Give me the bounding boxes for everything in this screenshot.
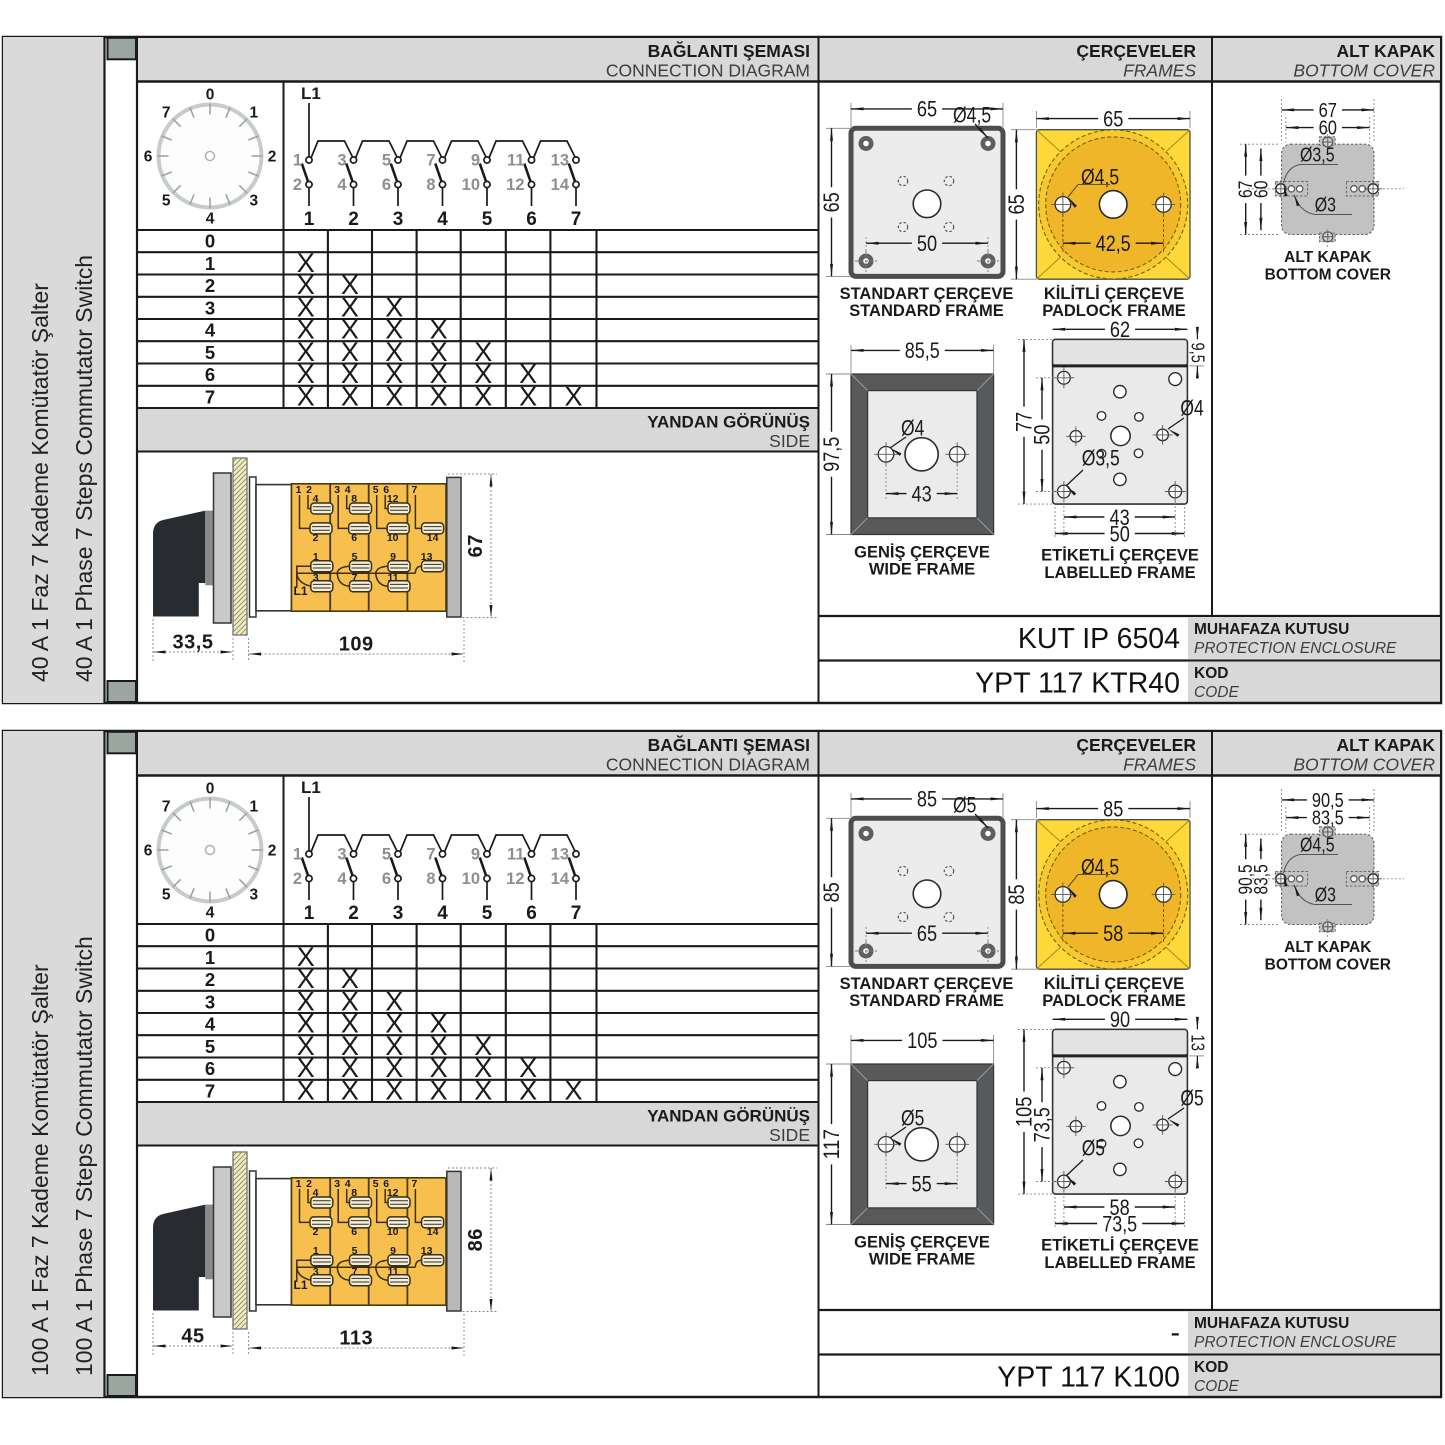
svg-text:4: 4 bbox=[206, 905, 215, 922]
svg-text:85: 85 bbox=[819, 882, 844, 902]
svg-text:97,5: 97,5 bbox=[819, 437, 844, 472]
svg-text:BAĞLANTI ŞEMASI: BAĞLANTI ŞEMASI bbox=[648, 40, 810, 61]
svg-text:100 A 1 Faz 7 Kademe Komütatör: 100 A 1 Faz 7 Kademe Komütatör Şalter bbox=[27, 964, 53, 1376]
svg-text:WIDE FRAME: WIDE FRAME bbox=[869, 561, 975, 579]
svg-text:4: 4 bbox=[437, 209, 448, 230]
svg-text:MUHAFAZA KUTUSU: MUHAFAZA KUTUSU bbox=[1194, 621, 1349, 638]
svg-text:1: 1 bbox=[296, 484, 302, 496]
svg-text:42,5: 42,5 bbox=[1096, 231, 1131, 256]
svg-text:1: 1 bbox=[205, 947, 215, 968]
svg-text:3: 3 bbox=[334, 484, 340, 496]
svg-text:6: 6 bbox=[351, 1226, 357, 1238]
svg-text:60: 60 bbox=[1319, 118, 1337, 140]
svg-text:5: 5 bbox=[205, 342, 215, 363]
svg-text:4: 4 bbox=[345, 484, 351, 496]
svg-text:1: 1 bbox=[296, 1178, 302, 1190]
svg-text:L1: L1 bbox=[294, 584, 308, 598]
svg-text:7: 7 bbox=[411, 1178, 417, 1190]
svg-text:4: 4 bbox=[205, 320, 216, 341]
svg-text:2: 2 bbox=[268, 843, 277, 860]
svg-text:X: X bbox=[341, 381, 359, 411]
svg-text:5: 5 bbox=[373, 1178, 379, 1190]
svg-text:85,5: 85,5 bbox=[905, 338, 940, 363]
svg-text:33,5: 33,5 bbox=[173, 632, 214, 654]
svg-text:5: 5 bbox=[373, 484, 379, 496]
svg-text:10: 10 bbox=[462, 176, 480, 194]
svg-text:0: 0 bbox=[205, 925, 215, 946]
svg-text:55: 55 bbox=[912, 1171, 932, 1196]
svg-text:4: 4 bbox=[337, 176, 347, 194]
svg-text:L1: L1 bbox=[294, 1278, 308, 1292]
svg-text:9: 9 bbox=[471, 846, 480, 864]
svg-text:Ø5: Ø5 bbox=[1180, 1086, 1203, 1111]
svg-text:Ø4,5: Ø4,5 bbox=[1081, 164, 1119, 189]
svg-text:3: 3 bbox=[393, 209, 404, 230]
svg-text:KOD: KOD bbox=[1194, 665, 1228, 682]
svg-text:2: 2 bbox=[205, 969, 215, 990]
svg-text:X: X bbox=[519, 1075, 537, 1105]
svg-text:6: 6 bbox=[205, 1058, 215, 1079]
svg-text:10: 10 bbox=[387, 532, 399, 544]
svg-text:X: X bbox=[564, 381, 582, 411]
svg-text:0: 0 bbox=[206, 781, 215, 798]
svg-text:PROTECTION ENCLOSURE: PROTECTION ENCLOSURE bbox=[1194, 1334, 1397, 1351]
svg-text:7: 7 bbox=[426, 846, 435, 864]
svg-text:KİLİTLİ ÇERÇEVE: KİLİTLİ ÇERÇEVE bbox=[1044, 285, 1184, 303]
svg-text:109: 109 bbox=[339, 634, 374, 656]
svg-text:3: 3 bbox=[205, 297, 215, 318]
svg-text:6: 6 bbox=[526, 903, 537, 924]
svg-text:BAĞLANTI ŞEMASI: BAĞLANTI ŞEMASI bbox=[648, 734, 810, 755]
svg-text:X: X bbox=[564, 1075, 582, 1105]
svg-text:L1: L1 bbox=[301, 778, 321, 797]
svg-text:Ø4: Ø4 bbox=[901, 415, 924, 440]
svg-text:2: 2 bbox=[268, 149, 277, 166]
svg-text:65: 65 bbox=[917, 921, 937, 946]
svg-text:ÇERÇEVELER: ÇERÇEVELER bbox=[1076, 735, 1196, 755]
svg-text:X: X bbox=[385, 381, 403, 411]
svg-text:KUT IP 6504: KUT IP 6504 bbox=[1018, 623, 1180, 655]
svg-text:ETİKETLİ ÇERÇEVE: ETİKETLİ ÇERÇEVE bbox=[1041, 1237, 1199, 1255]
svg-text:SIDE: SIDE bbox=[769, 1125, 810, 1145]
svg-text:40 A 1 Faz 7 Kademe Komütatör: 40 A 1 Faz 7 Kademe Komütatör Şalter bbox=[27, 283, 53, 682]
svg-text:6: 6 bbox=[526, 209, 537, 230]
svg-text:5: 5 bbox=[162, 886, 171, 903]
svg-text:7: 7 bbox=[411, 484, 417, 496]
svg-text:7: 7 bbox=[162, 105, 171, 122]
svg-text:5: 5 bbox=[482, 903, 493, 924]
svg-text:14: 14 bbox=[551, 176, 570, 194]
svg-text:LABELLED FRAME: LABELLED FRAME bbox=[1044, 564, 1195, 582]
svg-text:MUHAFAZA KUTUSU: MUHAFAZA KUTUSU bbox=[1194, 1315, 1349, 1332]
svg-text:L1: L1 bbox=[301, 84, 321, 103]
svg-text:65: 65 bbox=[917, 97, 937, 122]
svg-text:X: X bbox=[430, 1075, 448, 1105]
svg-text:YPT 117 K100: YPT 117 K100 bbox=[997, 1362, 1180, 1394]
svg-text:50: 50 bbox=[1030, 425, 1055, 445]
svg-text:3: 3 bbox=[393, 903, 404, 924]
svg-text:65: 65 bbox=[1004, 194, 1029, 214]
svg-text:ALT KAPAK: ALT KAPAK bbox=[1336, 41, 1435, 61]
svg-text:X: X bbox=[519, 381, 537, 411]
svg-text:4: 4 bbox=[345, 1178, 351, 1190]
svg-text:113: 113 bbox=[339, 1328, 373, 1350]
svg-text:STANDARD FRAME: STANDARD FRAME bbox=[849, 302, 1004, 320]
svg-text:65: 65 bbox=[1103, 106, 1123, 131]
svg-text:45: 45 bbox=[181, 1326, 204, 1348]
svg-text:11: 11 bbox=[507, 152, 524, 170]
svg-text:6: 6 bbox=[205, 364, 215, 385]
svg-text:14: 14 bbox=[427, 532, 439, 544]
svg-text:0: 0 bbox=[206, 87, 215, 104]
svg-text:3: 3 bbox=[337, 846, 346, 864]
svg-text:2: 2 bbox=[306, 484, 312, 496]
svg-text:2: 2 bbox=[205, 275, 215, 296]
svg-text:50: 50 bbox=[1110, 521, 1130, 546]
svg-text:X: X bbox=[297, 1075, 315, 1105]
svg-text:1: 1 bbox=[249, 105, 258, 122]
svg-text:2: 2 bbox=[293, 870, 302, 888]
svg-text:43: 43 bbox=[912, 481, 932, 506]
svg-text:STANDART ÇERÇEVE: STANDART ÇERÇEVE bbox=[840, 285, 1014, 303]
svg-text:Ø5: Ø5 bbox=[953, 792, 976, 817]
svg-text:ALT KAPAK: ALT KAPAK bbox=[1284, 939, 1372, 956]
svg-text:Ø3,5: Ø3,5 bbox=[1082, 446, 1120, 471]
svg-text:5: 5 bbox=[382, 846, 391, 864]
svg-text:5: 5 bbox=[482, 209, 493, 230]
svg-text:50: 50 bbox=[917, 231, 937, 256]
svg-text:6: 6 bbox=[351, 532, 357, 544]
svg-text:14: 14 bbox=[427, 1226, 439, 1238]
svg-text:4: 4 bbox=[437, 903, 448, 924]
svg-text:X: X bbox=[430, 381, 448, 411]
svg-text:YANDAN GÖRÜNÜŞ: YANDAN GÖRÜNÜŞ bbox=[647, 1107, 810, 1126]
svg-text:4: 4 bbox=[337, 870, 347, 888]
svg-text:117: 117 bbox=[819, 1129, 844, 1159]
svg-text:CONNECTION DIAGRAM: CONNECTION DIAGRAM bbox=[606, 755, 810, 775]
svg-text:85: 85 bbox=[1103, 796, 1123, 821]
svg-text:100 A 1 Phase 7 Steps Commutat: 100 A 1 Phase 7 Steps Commutator Switch bbox=[71, 936, 97, 1376]
svg-text:Ø4,5: Ø4,5 bbox=[1300, 835, 1335, 857]
svg-text:X: X bbox=[297, 381, 315, 411]
svg-text:7: 7 bbox=[571, 903, 582, 924]
svg-text:STANDART ÇERÇEVE: STANDART ÇERÇEVE bbox=[840, 975, 1014, 993]
svg-text:73,5: 73,5 bbox=[1029, 1107, 1054, 1142]
svg-text:1: 1 bbox=[293, 152, 302, 170]
svg-text:ALT KAPAK: ALT KAPAK bbox=[1284, 249, 1372, 266]
svg-text:SIDE: SIDE bbox=[769, 431, 810, 451]
svg-text:LABELLED FRAME: LABELLED FRAME bbox=[1044, 1254, 1195, 1272]
svg-text:83,5: 83,5 bbox=[1312, 808, 1344, 830]
svg-text:3: 3 bbox=[205, 991, 215, 1012]
svg-text:7: 7 bbox=[205, 386, 215, 407]
svg-text:YANDAN GÖRÜNÜŞ: YANDAN GÖRÜNÜŞ bbox=[647, 413, 810, 432]
svg-text:2: 2 bbox=[313, 1226, 319, 1238]
svg-text:9,5: 9,5 bbox=[1188, 343, 1208, 363]
svg-text:ETİKETLİ ÇERÇEVE: ETİKETLİ ÇERÇEVE bbox=[1041, 547, 1199, 565]
svg-text:7: 7 bbox=[426, 152, 435, 170]
svg-text:13: 13 bbox=[1188, 1034, 1208, 1051]
svg-text:X: X bbox=[474, 1075, 492, 1105]
svg-text:1: 1 bbox=[293, 846, 302, 864]
svg-text:Ø3: Ø3 bbox=[1315, 885, 1336, 907]
svg-text:10: 10 bbox=[387, 1226, 399, 1238]
svg-text:6: 6 bbox=[144, 843, 153, 860]
svg-text:13: 13 bbox=[551, 152, 569, 170]
svg-text:4: 4 bbox=[206, 211, 215, 228]
svg-text:X: X bbox=[341, 1075, 359, 1105]
svg-text:3: 3 bbox=[334, 1178, 340, 1190]
svg-text:WIDE FRAME: WIDE FRAME bbox=[869, 1251, 975, 1269]
svg-text:90: 90 bbox=[1110, 1007, 1130, 1032]
svg-text:6: 6 bbox=[144, 149, 153, 166]
svg-text:5: 5 bbox=[205, 1036, 215, 1057]
svg-text:-: - bbox=[1171, 1317, 1181, 1349]
svg-text:2: 2 bbox=[306, 1178, 312, 1190]
svg-text:GENİŞ ÇERÇEVE: GENİŞ ÇERÇEVE bbox=[854, 544, 990, 562]
svg-text:9: 9 bbox=[471, 152, 480, 170]
svg-text:Ø4: Ø4 bbox=[1180, 396, 1203, 421]
svg-text:Ø5: Ø5 bbox=[901, 1105, 924, 1130]
svg-text:73,5: 73,5 bbox=[1102, 1211, 1137, 1236]
svg-text:10: 10 bbox=[462, 870, 480, 888]
svg-text:2: 2 bbox=[293, 176, 302, 194]
svg-text:40 A 1 Phase 7 Steps Commutato: 40 A 1 Phase 7 Steps Commutator Switch bbox=[71, 255, 97, 682]
svg-text:CODE: CODE bbox=[1194, 1378, 1239, 1395]
svg-text:ÇERÇEVELER: ÇERÇEVELER bbox=[1076, 41, 1196, 61]
svg-text:FRAMES: FRAMES bbox=[1123, 755, 1196, 775]
svg-text:BOTTOM COVER: BOTTOM COVER bbox=[1265, 267, 1391, 284]
svg-text:13: 13 bbox=[551, 846, 569, 864]
svg-text:FRAMES: FRAMES bbox=[1123, 61, 1196, 81]
svg-text:62: 62 bbox=[1110, 317, 1130, 342]
svg-text:PROTECTION ENCLOSURE: PROTECTION ENCLOSURE bbox=[1194, 640, 1397, 657]
svg-text:67: 67 bbox=[465, 534, 487, 557]
svg-text:1: 1 bbox=[304, 903, 315, 924]
svg-text:Ø3: Ø3 bbox=[1315, 195, 1336, 217]
svg-text:2: 2 bbox=[348, 209, 359, 230]
svg-text:8: 8 bbox=[426, 176, 435, 194]
svg-text:12: 12 bbox=[506, 176, 524, 194]
svg-text:0: 0 bbox=[205, 231, 215, 252]
svg-text:14: 14 bbox=[551, 870, 570, 888]
svg-text:7: 7 bbox=[162, 799, 171, 816]
svg-text:8: 8 bbox=[426, 870, 435, 888]
svg-text:Ø5: Ø5 bbox=[1082, 1136, 1105, 1161]
svg-text:85: 85 bbox=[1004, 884, 1029, 904]
svg-text:ALT KAPAK: ALT KAPAK bbox=[1336, 735, 1435, 755]
svg-text:X: X bbox=[474, 381, 492, 411]
svg-text:Ø3,5: Ø3,5 bbox=[1300, 145, 1335, 167]
svg-text:65: 65 bbox=[819, 192, 844, 212]
svg-text:X: X bbox=[385, 1075, 403, 1105]
svg-text:60: 60 bbox=[1251, 181, 1272, 199]
svg-text:BOTTOM COVER: BOTTOM COVER bbox=[1265, 957, 1391, 974]
svg-text:STANDARD FRAME: STANDARD FRAME bbox=[849, 992, 1004, 1010]
svg-text:YPT 117 KTR40: YPT 117 KTR40 bbox=[975, 668, 1180, 700]
svg-text:3: 3 bbox=[337, 152, 346, 170]
svg-text:CODE: CODE bbox=[1194, 684, 1239, 701]
svg-text:KİLİTLİ ÇERÇEVE: KİLİTLİ ÇERÇEVE bbox=[1044, 975, 1184, 993]
svg-text:BOTTOM COVER: BOTTOM COVER bbox=[1293, 61, 1435, 81]
svg-text:5: 5 bbox=[162, 192, 171, 209]
svg-text:2: 2 bbox=[313, 532, 319, 544]
svg-text:Ø4,5: Ø4,5 bbox=[1081, 854, 1119, 879]
svg-text:11: 11 bbox=[507, 846, 524, 864]
svg-text:1: 1 bbox=[249, 799, 258, 816]
svg-text:GENİŞ ÇERÇEVE: GENİŞ ÇERÇEVE bbox=[854, 1234, 990, 1252]
svg-text:Ø4,5: Ø4,5 bbox=[953, 102, 991, 127]
svg-text:12: 12 bbox=[506, 870, 524, 888]
svg-text:83,5: 83,5 bbox=[1251, 864, 1272, 894]
svg-text:6: 6 bbox=[382, 870, 391, 888]
svg-text:BOTTOM COVER: BOTTOM COVER bbox=[1293, 755, 1435, 775]
svg-text:6: 6 bbox=[382, 176, 391, 194]
svg-text:2: 2 bbox=[348, 903, 359, 924]
svg-text:105: 105 bbox=[907, 1028, 937, 1053]
svg-text:1: 1 bbox=[304, 209, 315, 230]
svg-text:5: 5 bbox=[382, 152, 391, 170]
svg-text:86: 86 bbox=[465, 1228, 487, 1251]
svg-text:1: 1 bbox=[205, 253, 215, 274]
svg-text:4: 4 bbox=[205, 1014, 216, 1035]
svg-text:58: 58 bbox=[1103, 921, 1123, 946]
svg-text:3: 3 bbox=[249, 886, 258, 903]
svg-text:85: 85 bbox=[917, 787, 937, 812]
svg-text:3: 3 bbox=[249, 192, 258, 209]
svg-text:7: 7 bbox=[205, 1080, 215, 1101]
svg-text:CONNECTION DIAGRAM: CONNECTION DIAGRAM bbox=[606, 61, 810, 81]
svg-text:KOD: KOD bbox=[1194, 1359, 1228, 1376]
svg-text:7: 7 bbox=[571, 209, 582, 230]
